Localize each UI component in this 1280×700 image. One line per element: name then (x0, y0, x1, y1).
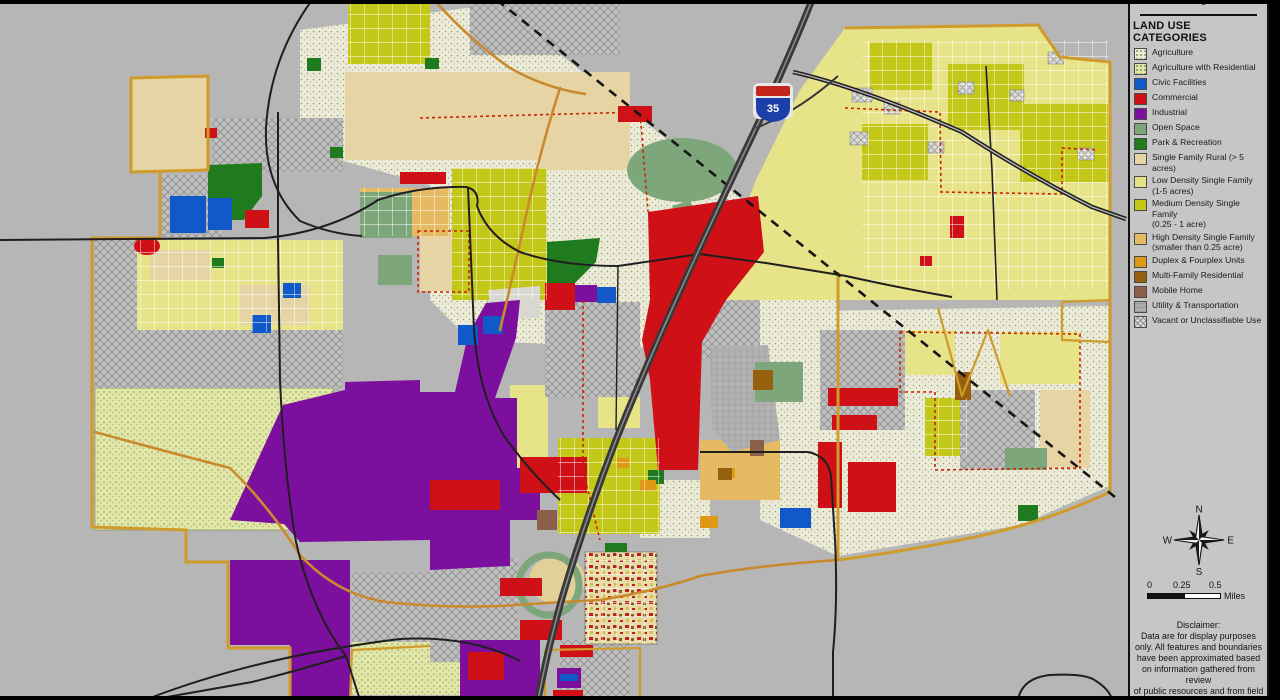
compass-north-label: N (1195, 505, 1202, 516)
legend-item: Industrial (1134, 107, 1267, 120)
legend-item: Duplex & Fourplex Units (1134, 255, 1267, 268)
land-use-map-screenshot: 35 Planning Area LAND USE CATEGORIES Agr… (0, 0, 1280, 700)
legend-item-label: Multi-Family Residential (1152, 270, 1243, 281)
legend-swatch (1134, 176, 1147, 188)
map-canvas: 35 (0, 0, 1280, 700)
disclaimer-line: Data are for display purposes (1133, 631, 1264, 642)
legend-item: Open Space (1134, 122, 1267, 135)
legend-item-label: Utility & Transportation (1152, 300, 1238, 311)
disclaimer-lines: Data are for display purposesonly. All f… (1133, 631, 1264, 700)
disclaimer-line: only. All features and boundaries (1133, 642, 1264, 653)
scale-bar-segment-black (1147, 593, 1184, 599)
compass-east-label: E (1227, 535, 1234, 546)
legend-swatch (1134, 78, 1147, 90)
legend-item-label: Civic Facilities (1152, 77, 1206, 88)
legend-swatch (1134, 123, 1147, 135)
legend-item: Civic Facilities (1134, 77, 1267, 90)
legend-swatch (1134, 271, 1147, 283)
compass-south-label: S (1195, 567, 1202, 576)
scale-unit-label: Miles (1224, 591, 1245, 601)
legend-item: Low Density Single Family (1-5 acres) (1134, 175, 1267, 196)
legend-item-label: High Density Single Family (smaller than… (1152, 232, 1255, 253)
legend-item-label: Park & Recreation (1152, 137, 1222, 148)
legend-item: Multi-Family Residential (1134, 270, 1267, 283)
legend-item: Mobile Home (1134, 285, 1267, 298)
legend-panel: Planning Area LAND USE CATEGORIES Agricu… (1128, 0, 1269, 700)
legend-item-label: Vacant or Unclassifiable Use (1152, 315, 1261, 326)
legend-item-label: Mobile Home (1152, 285, 1203, 296)
legend-item: High Density Single Family (smaller than… (1134, 232, 1267, 253)
legend-item-label: Agriculture with Residential (1152, 62, 1256, 73)
legend-item: Commercial (1134, 92, 1267, 105)
legend-item-label: Open Space (1152, 122, 1200, 133)
disclaimer: Disclaimer: Data are for display purpose… (1133, 620, 1264, 700)
legend-header: LAND USE CATEGORIES (1133, 20, 1267, 44)
scale-tick-start: 0 (1147, 580, 1152, 590)
legend-item-label: Agriculture (1152, 47, 1193, 58)
legend-swatch (1134, 316, 1147, 328)
legend-swatch (1134, 93, 1147, 105)
legend-item: Agriculture (1134, 47, 1267, 60)
legend-item-label: Duplex & Fourplex Units (1152, 255, 1245, 266)
disclaimer-title: Disclaimer: (1133, 620, 1264, 631)
legend-item: Park & Recreation (1134, 137, 1267, 150)
scale-tick-labels: 0 0.25 0.5 (1147, 580, 1223, 591)
interstate-shield: 35 (753, 83, 793, 122)
legend-item: Single Family Rural (> 5 acres) (1134, 152, 1267, 173)
legend-swatch (1134, 256, 1147, 268)
legend-swatch (1134, 138, 1147, 150)
right-black-bar (1269, 0, 1280, 700)
compass-rose: N S W E (1130, 504, 1267, 576)
downtown-grid (585, 552, 657, 644)
legend-items: Agriculture Agriculture with Residential… (1134, 47, 1267, 328)
legend-item-label: Commercial (1152, 92, 1198, 103)
legend-swatch (1134, 301, 1147, 313)
scale-bar-segment-white (1184, 593, 1221, 599)
scale-bar: 0 0.25 0.5 Miles (1147, 580, 1267, 601)
disclaimer-line: on information gathered from review (1133, 664, 1264, 686)
top-black-bar (0, 0, 1280, 4)
disclaimer-line: have been approximated based (1133, 653, 1264, 664)
legend-item: Medium Density Single Family (0.25 - 1 a… (1134, 198, 1267, 230)
compass-west-label: W (1162, 535, 1172, 546)
legend-item-label: Industrial (1152, 107, 1187, 118)
legend-item: Vacant or Unclassifiable Use (1134, 315, 1267, 328)
legend-swatch (1134, 199, 1147, 211)
legend-item: Agriculture with Residential (1134, 62, 1267, 75)
legend-item-label: Medium Density Single Family (0.25 - 1 a… (1152, 198, 1267, 230)
legend-item-label: Low Density Single Family (1-5 acres) (1152, 175, 1253, 196)
scale-tick-end: 0.5 (1209, 580, 1222, 590)
legend-swatch (1134, 63, 1147, 75)
legend-item-label: Single Family Rural (> 5 acres) (1152, 152, 1267, 173)
legend-swatch (1134, 153, 1147, 165)
scale-tick-mid: 0.25 (1173, 580, 1191, 590)
legend-divider (1140, 14, 1257, 16)
bottom-black-bar (0, 696, 1280, 700)
legend-swatch (1134, 233, 1147, 245)
legend-item: Utility & Transportation (1134, 300, 1267, 313)
legend-swatch (1134, 48, 1147, 60)
legend-swatch (1134, 286, 1147, 298)
legend-swatch (1134, 108, 1147, 120)
shield-number: 35 (767, 103, 779, 115)
